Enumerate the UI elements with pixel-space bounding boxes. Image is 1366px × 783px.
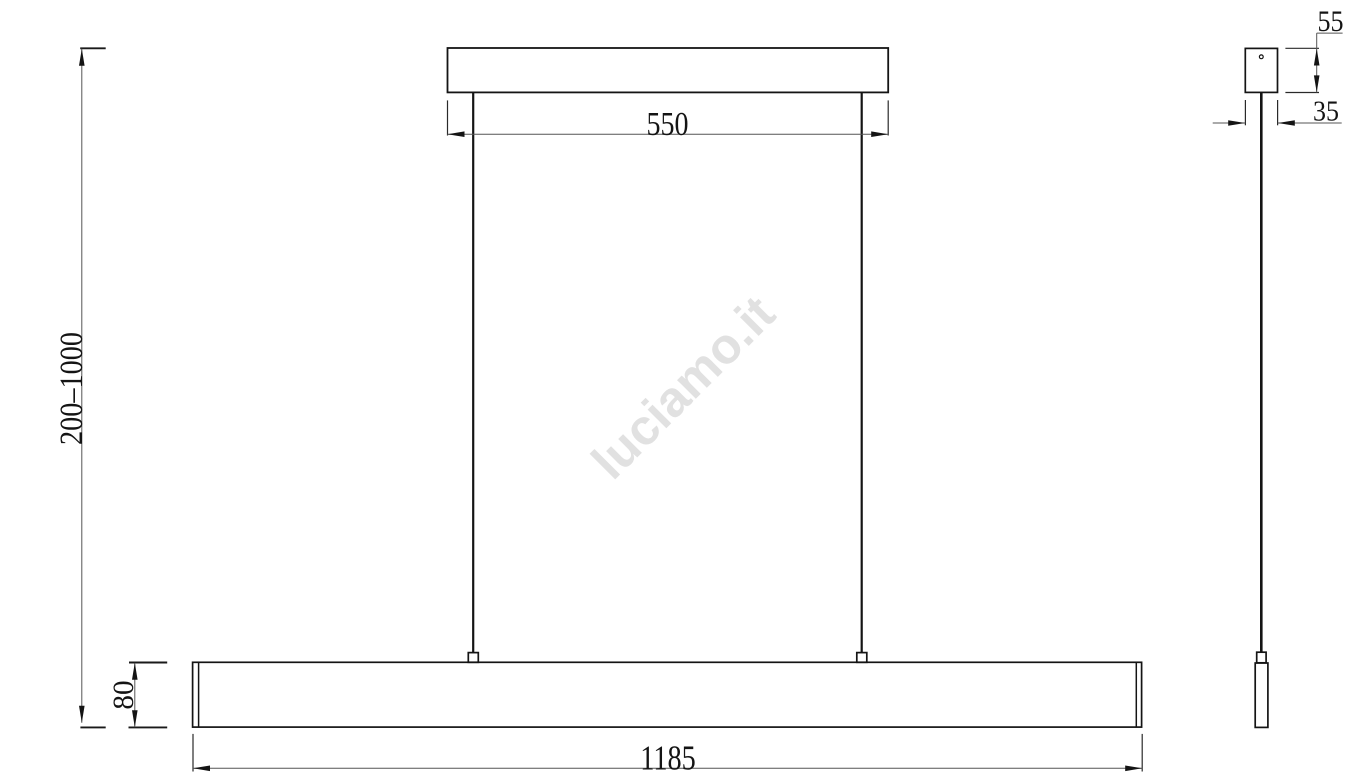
- svg-text:55: 55: [1318, 6, 1344, 38]
- svg-text:200–1000: 200–1000: [54, 332, 90, 445]
- svg-text:35: 35: [1313, 97, 1339, 128]
- svg-text:luciamo.it: luciamo.it: [581, 285, 786, 490]
- svg-text:80: 80: [107, 680, 140, 709]
- svg-text:1185: 1185: [640, 738, 696, 777]
- svg-text:550: 550: [647, 106, 689, 143]
